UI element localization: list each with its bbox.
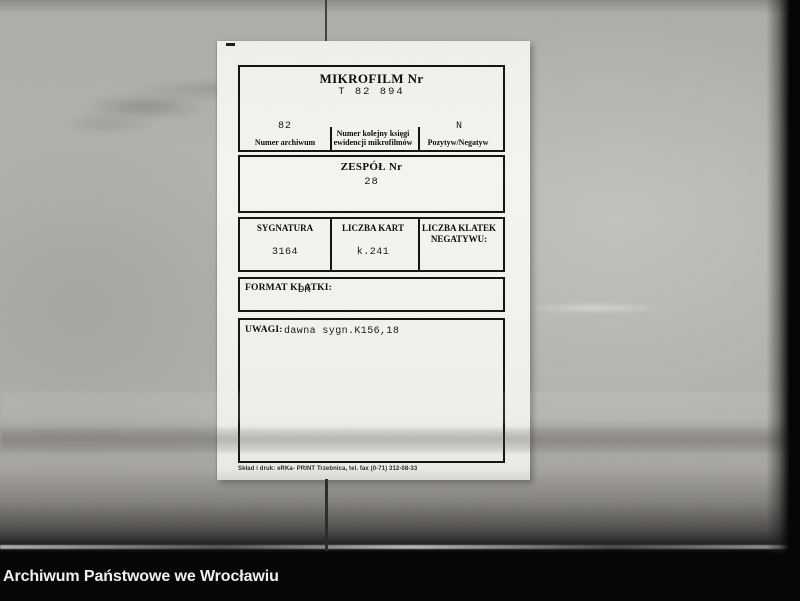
- film-right-edge: [766, 0, 789, 553]
- format-label: FORMAT KLATKI:: [245, 283, 332, 293]
- header-divider-2: [418, 127, 420, 150]
- numer-archiwum-label: Numer archiwum: [240, 139, 330, 148]
- film-light-streak: [505, 300, 705, 316]
- print-credit: Skład i druk: eRKa- PRINT Trzebnica, tel…: [238, 466, 417, 472]
- bottom-shadow-gradient: [0, 468, 789, 553]
- liczba-kart-value: k.241: [328, 247, 418, 258]
- pozytyw-negatyw-label: Pozytyw/Negatyw: [413, 139, 503, 148]
- format-box: FORMAT KLATKI: DK: [238, 277, 505, 312]
- uwagi-box: UWAGI: dawna sygn.K156,18: [238, 318, 505, 463]
- liczba-kart-label: LICZBA KART: [328, 223, 418, 234]
- archive-caption-text: Archiwum Państwowe we Wrocławiu: [3, 568, 279, 585]
- ksiega-label-line2: ewidencji mikrofilmów: [328, 139, 418, 148]
- header-box: MIKROFILM Nr T 82 894 82 N Numer archiwu…: [238, 65, 505, 152]
- zespol-value: 28: [240, 176, 503, 188]
- microfilm-card: MIKROFILM Nr T 82 894 82 N Numer archiwu…: [217, 41, 530, 480]
- microfilm-photo-background: MIKROFILM Nr T 82 894 82 N Numer archiwu…: [0, 0, 789, 553]
- pozytyw-negatyw-value: N: [418, 121, 501, 132]
- details-box: SYGNATURA LICZBA KART LICZBA KLATEK NEGA…: [238, 217, 505, 272]
- liczba-klatek-label-line1: LICZBA KLATEK: [415, 223, 503, 234]
- liczba-klatek-label: LICZBA KLATEK NEGATYWU:: [415, 223, 503, 245]
- uwagi-label: UWAGI:: [245, 325, 283, 335]
- archive-caption: Archiwum Państwowe we Wrocławiu: [3, 568, 279, 586]
- details-divider-2: [418, 219, 420, 270]
- zespol-box: ZESPÓŁ Nr 28: [238, 155, 505, 213]
- sygnatura-label: SYGNATURA: [240, 223, 330, 234]
- numer-archiwum-value: 82: [240, 121, 330, 132]
- format-value: DK: [298, 284, 311, 296]
- details-divider-1: [330, 219, 332, 270]
- liczba-klatek-label-line2: NEGATYWU:: [415, 234, 503, 245]
- zespol-label: ZESPÓŁ Nr: [240, 161, 503, 173]
- scan-viewport: MIKROFILM Nr T 82 894 82 N Numer archiwu…: [0, 0, 800, 601]
- sygnatura-value: 3164: [240, 247, 330, 258]
- header-divider-1: [330, 127, 332, 150]
- fold-line-top: [325, 0, 327, 42]
- uwagi-value: dawna sygn.K156,18: [284, 326, 399, 337]
- fold-line-bottom: [325, 479, 328, 551]
- form-title: MIKROFILM Nr: [240, 71, 503, 87]
- microfilm-number: T 82 894: [240, 86, 503, 98]
- film-mark-icon: [226, 43, 235, 46]
- ksiega-ewidencji-label: Numer kolejny księgi ewidencji mikrofilm…: [328, 130, 418, 148]
- scratch-highlight-line: [0, 545, 789, 549]
